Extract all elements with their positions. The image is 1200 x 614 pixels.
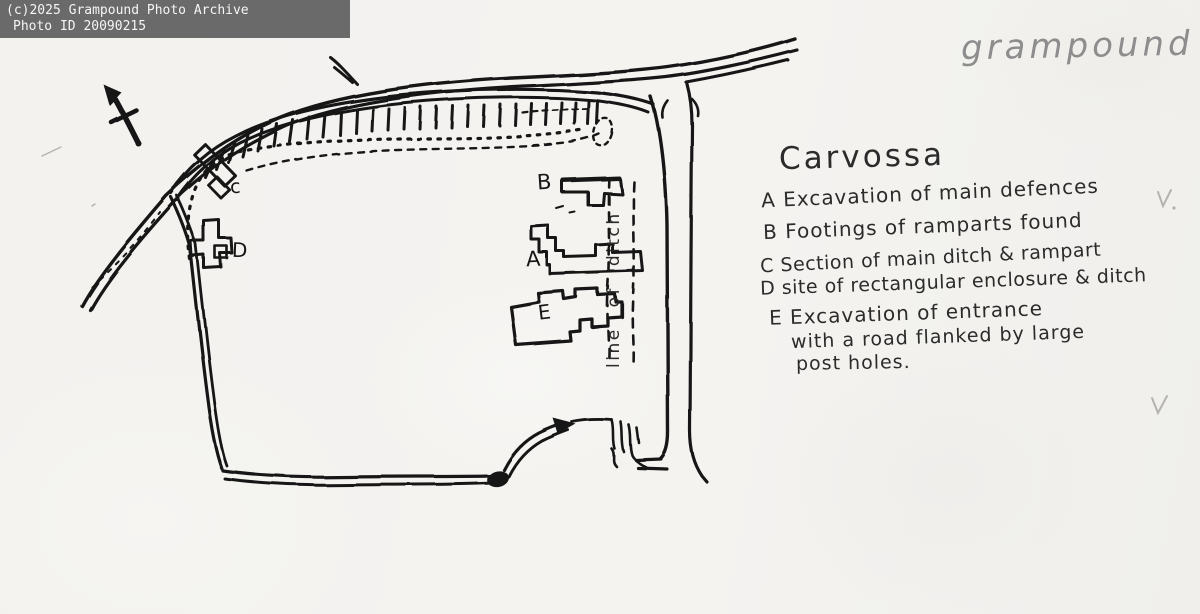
road-fork-spur xyxy=(330,57,357,84)
banner-photo-id: Photo ID 20090215 xyxy=(13,19,350,35)
roads xyxy=(82,39,797,482)
entrance-road xyxy=(504,418,646,477)
scanned-sketch-map-page: (c)2025 Grampound Photo Archive Photo ID… xyxy=(0,0,1200,614)
photo-archive-banner: (c)2025 Grampound Photo Archive Photo ID… xyxy=(0,0,350,38)
legend-entry-e-line3: post holes. xyxy=(796,351,911,375)
map-label-c: c xyxy=(229,176,241,199)
map-label-d: D xyxy=(232,238,248,263)
banner-copyright-line: (c)2025 Grampound Photo Archive xyxy=(6,3,350,19)
map-label-a: A xyxy=(525,247,541,272)
page-title: grampound xyxy=(961,24,1194,69)
legend-title: Carvossa xyxy=(779,137,946,177)
ditch-line-caption: line of ditch xyxy=(604,176,634,368)
north-arrow xyxy=(104,85,141,146)
map-label-b: B xyxy=(536,170,552,195)
